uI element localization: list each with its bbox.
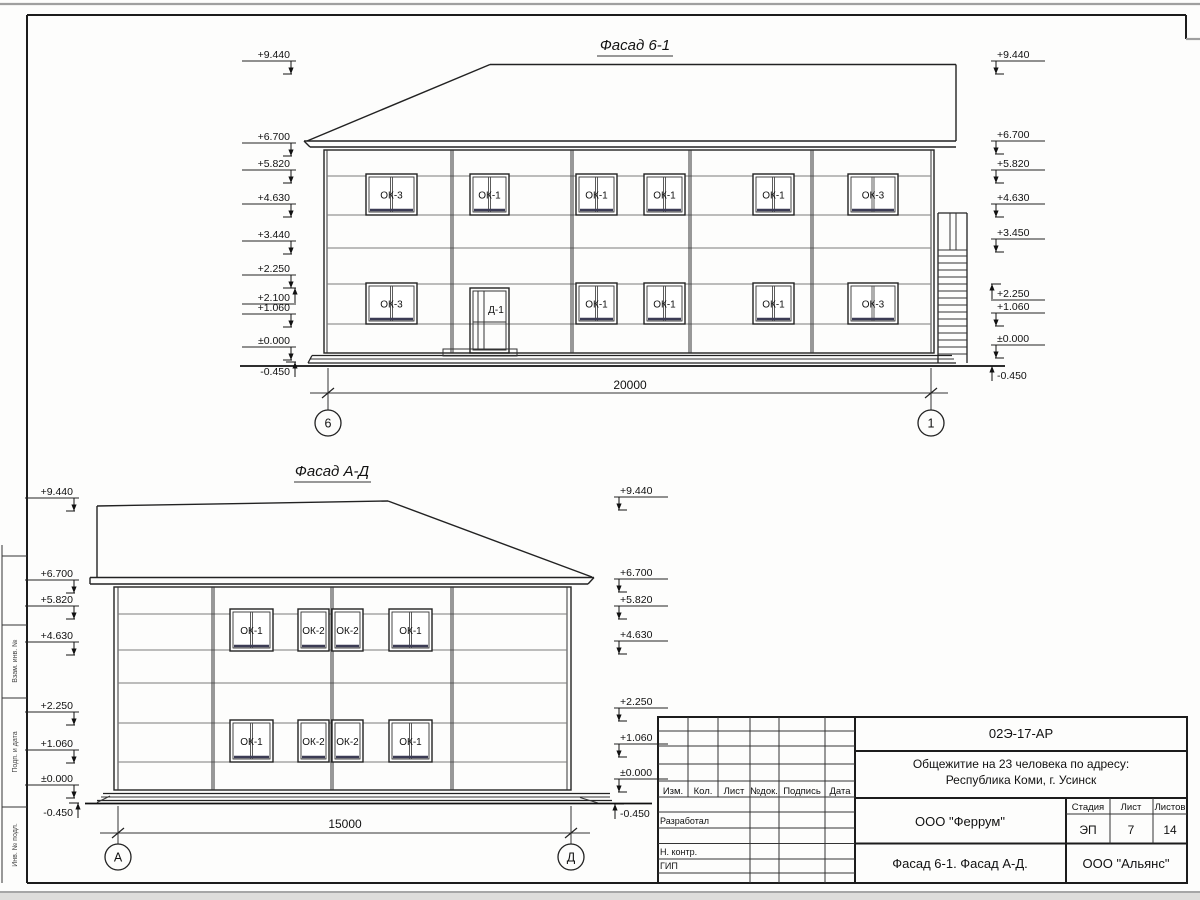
elevation-mark: ±0.000	[25, 773, 79, 798]
window: ОК-3	[366, 283, 417, 324]
col-list: Лист	[724, 786, 745, 797]
margin-label: Взам. инв. №	[12, 639, 19, 682]
elevation-mark: ±0.000	[991, 333, 1045, 358]
col-izm: Изм.	[663, 786, 683, 797]
margin-label: Подп. и дата	[12, 731, 19, 772]
window: ОК-1	[753, 283, 794, 324]
svg-text:-0.450: -0.450	[620, 808, 650, 820]
elevation-mark: +9.440	[614, 485, 668, 510]
svg-text:±0.000: ±0.000	[258, 335, 290, 347]
window-label: ОК-2	[302, 626, 325, 637]
svg-text:+9.440: +9.440	[620, 485, 653, 497]
col-data: Дата	[829, 786, 851, 797]
svg-text:+5.820: +5.820	[997, 158, 1030, 170]
window-label: ОК-3	[862, 191, 885, 202]
contractor-org: ООО "Альянс"	[1083, 856, 1170, 871]
fire-ladder	[938, 213, 967, 363]
svg-text:+6.700: +6.700	[41, 568, 74, 580]
window-label: ОК-1	[762, 300, 785, 311]
elevation-mark: +5.820	[25, 594, 79, 619]
doc-number: 02Э-17-АР	[989, 726, 1053, 741]
svg-text:±0.000: ±0.000	[620, 767, 652, 779]
svg-text:+1.060: +1.060	[620, 732, 653, 744]
dimension-value: 20000	[613, 378, 647, 392]
sheet-value: 7	[1128, 823, 1135, 837]
row-razrabotal: Разработал	[660, 816, 709, 826]
elevation-mark: +3.440	[242, 229, 296, 254]
window: ОК-1	[389, 609, 432, 651]
window: ОК-3	[848, 283, 898, 324]
window: ОК-1	[644, 283, 685, 324]
window-label: ОК-1	[240, 626, 263, 637]
elevation-mark: +5.820	[614, 594, 668, 619]
designer-org: ООО "Феррум"	[915, 814, 1005, 829]
svg-text:+5.820: +5.820	[620, 594, 653, 606]
svg-text:+4.630: +4.630	[258, 192, 291, 204]
svg-text:+2.250: +2.250	[620, 696, 653, 708]
svg-text:+2.250: +2.250	[41, 700, 74, 712]
window: ОК-1	[470, 174, 509, 215]
svg-text:+1.060: +1.060	[258, 302, 291, 314]
window: ОК-2	[298, 720, 329, 762]
elevation-mark: +6.700	[242, 131, 296, 156]
elevation-mark: -0.450	[43, 803, 80, 819]
drawing-sheet: Взам. инв. № Подп. и дата Инв. № подл. Ф…	[0, 0, 1200, 900]
door-label: Д-1	[488, 305, 504, 316]
svg-text:+1.060: +1.060	[41, 738, 74, 750]
svg-text:+9.440: +9.440	[41, 486, 74, 498]
margin-label: Инв. № подл.	[12, 823, 19, 867]
facade-a-d-elevation-marks-left: +9.440+6.700+5.820+4.630+2.250+1.060±0.0…	[25, 486, 81, 819]
svg-text:±0.000: ±0.000	[997, 333, 1029, 345]
window-label: ОК-1	[399, 737, 422, 748]
window-label: ОК-1	[762, 191, 785, 202]
project-name-line1: Общежитие на 23 человека по адресу:	[913, 757, 1129, 771]
window: ОК-2	[332, 720, 363, 762]
dimension-value: 15000	[328, 817, 362, 831]
col-podpis: Подпись	[783, 786, 821, 797]
elevation-mark: +1.060	[242, 302, 296, 327]
elevation-mark: +6.700	[991, 129, 1045, 154]
window: ОК-2	[298, 609, 329, 651]
col-kol: Кол.	[694, 786, 713, 797]
window-label: ОК-3	[862, 300, 885, 311]
window-label: ОК-1	[478, 191, 501, 202]
elevation-mark: +4.630	[242, 192, 296, 217]
window-label: ОК-1	[240, 737, 263, 748]
facade-6-1: Фасад 6-1	[240, 37, 1045, 436]
svg-text:+5.820: +5.820	[258, 158, 291, 170]
window: ОК-1	[576, 174, 617, 215]
svg-text:+2.250: +2.250	[997, 288, 1030, 300]
facade-6-1-elevation-marks-left: +9.440+6.700+5.820+4.630+3.440+2.250+2.1…	[242, 49, 298, 378]
svg-text:+4.630: +4.630	[620, 629, 653, 641]
elevation-mark: +9.440	[25, 486, 79, 511]
elevation-mark: +4.630	[614, 629, 668, 654]
sheets-value: 14	[1163, 823, 1177, 837]
svg-text:-0.450: -0.450	[43, 807, 73, 819]
svg-text:+9.440: +9.440	[258, 49, 291, 61]
window: ОК-1	[753, 174, 794, 215]
elevation-mark: +1.060	[991, 301, 1045, 326]
window-label: ОК-3	[380, 191, 403, 202]
window: ОК-1	[389, 720, 432, 762]
facade-6-1-roof	[304, 65, 956, 148]
margin-attribute-column: Взам. инв. № Подп. и дата Инв. № подл.	[2, 545, 27, 883]
window: ОК-3	[366, 174, 417, 215]
entrance-door: Д-1	[443, 288, 517, 356]
elevation-mark: +9.440	[991, 49, 1045, 74]
elevation-mark: -0.450	[989, 366, 1027, 382]
svg-text:+3.450: +3.450	[997, 227, 1030, 239]
elevation-mark: +2.250	[989, 284, 1045, 300]
axis-label-6: 6	[325, 417, 332, 431]
facade-6-1-title: Фасад 6-1	[600, 37, 670, 54]
col-ndok: №док.	[750, 786, 778, 797]
window-label: ОК-1	[653, 191, 676, 202]
facade-6-1-windows-upper: ОК-3ОК-1ОК-1ОК-1ОК-1ОК-3	[366, 174, 898, 215]
window-label: ОК-1	[399, 626, 422, 637]
svg-text:+4.630: +4.630	[997, 192, 1030, 204]
elevation-mark: +1.060	[614, 732, 668, 757]
window: ОК-1	[644, 174, 685, 215]
elevation-mark: +5.820	[242, 158, 296, 183]
elevation-mark: +2.250	[242, 263, 296, 288]
svg-text:+1.060: +1.060	[997, 301, 1030, 313]
project-name-line2: Республика Коми, г. Усинск	[946, 773, 1097, 787]
stage-label: Стадия	[1072, 802, 1104, 813]
facade-a-d-elevation-marks-right: +9.440+6.700+5.820+4.630+2.250+1.060±0.0…	[612, 485, 668, 820]
facade-6-1-windows-lower: ОК-3ОК-1ОК-1ОК-1ОК-3	[366, 283, 898, 324]
facade-a-d-base	[85, 794, 652, 804]
axis-label-1: 1	[928, 417, 935, 431]
facade-6-1-base	[240, 356, 1005, 367]
window-label: ОК-2	[336, 626, 359, 637]
facade-drawing-svg: Взам. инв. № Подп. и дата Инв. № подл. Ф…	[0, 0, 1200, 900]
facade-6-1-elevation-marks-right: +9.440+6.700+5.820+4.630+3.450+2.250+1.0…	[989, 49, 1045, 382]
facade-6-1-dimension: 20000 6 1	[310, 368, 948, 436]
elevation-mark: +1.060	[25, 738, 79, 763]
stage-value: ЭП	[1079, 823, 1096, 837]
elevation-mark: +4.630	[991, 192, 1045, 217]
elevation-mark: +5.820	[991, 158, 1045, 183]
window: ОК-2	[332, 609, 363, 651]
window: ОК-1	[230, 720, 273, 762]
title-block: 02Э-17-АР Общежитие на 23 человека по ад…	[658, 717, 1187, 883]
window-label: ОК-2	[336, 737, 359, 748]
svg-text:±0.000: ±0.000	[41, 773, 73, 785]
svg-text:+6.700: +6.700	[620, 567, 653, 579]
window-label: ОК-1	[585, 191, 608, 202]
window-label: ОК-3	[380, 300, 403, 311]
window-label: ОК-1	[653, 300, 676, 311]
svg-text:+9.440: +9.440	[997, 49, 1030, 61]
facade-a-d-title: Фасад А-Д	[295, 463, 370, 480]
row-nkontr: Н. контр.	[660, 847, 697, 857]
svg-text:+5.820: +5.820	[41, 594, 74, 606]
window: ОК-1	[230, 609, 273, 651]
elevation-mark: -0.450	[260, 362, 297, 378]
row-gip: ГИП	[660, 861, 678, 871]
svg-text:+3.440: +3.440	[258, 229, 291, 241]
elevation-mark: +4.630	[25, 630, 79, 655]
window: ОК-1	[576, 283, 617, 324]
svg-text:+4.630: +4.630	[41, 630, 74, 642]
svg-text:+2.250: +2.250	[258, 263, 291, 275]
elevation-mark: +9.440	[242, 49, 296, 74]
svg-text:+6.700: +6.700	[997, 129, 1030, 141]
window: ОК-3	[848, 174, 898, 215]
sheet-label: Лист	[1121, 802, 1142, 813]
svg-text:-0.450: -0.450	[997, 370, 1027, 382]
axis-label-d: Д	[567, 851, 576, 865]
elevation-mark: +2.250	[25, 700, 79, 725]
elevation-mark: ±0.000	[242, 335, 296, 360]
elevation-mark: +3.450	[991, 227, 1045, 252]
facade-a-d: Фасад А-Д	[25, 463, 668, 870]
facade-a-d-roof	[90, 501, 594, 584]
sheet-content: Фасад 6-1. Фасад А-Д.	[892, 856, 1028, 871]
window-label: ОК-1	[585, 300, 608, 311]
axis-label-a: А	[114, 851, 123, 865]
facade-a-d-dimension: 15000 А Д	[100, 806, 590, 870]
elevation-mark: +6.700	[25, 568, 79, 593]
window-label: ОК-2	[302, 737, 325, 748]
elevation-mark: -0.450	[612, 804, 650, 820]
sheets-label: Листов	[1155, 802, 1186, 813]
svg-text:-0.450: -0.450	[260, 366, 290, 378]
elevation-mark: ±0.000	[614, 767, 668, 792]
svg-text:+6.700: +6.700	[258, 131, 291, 143]
elevation-mark: +6.700	[614, 567, 668, 592]
